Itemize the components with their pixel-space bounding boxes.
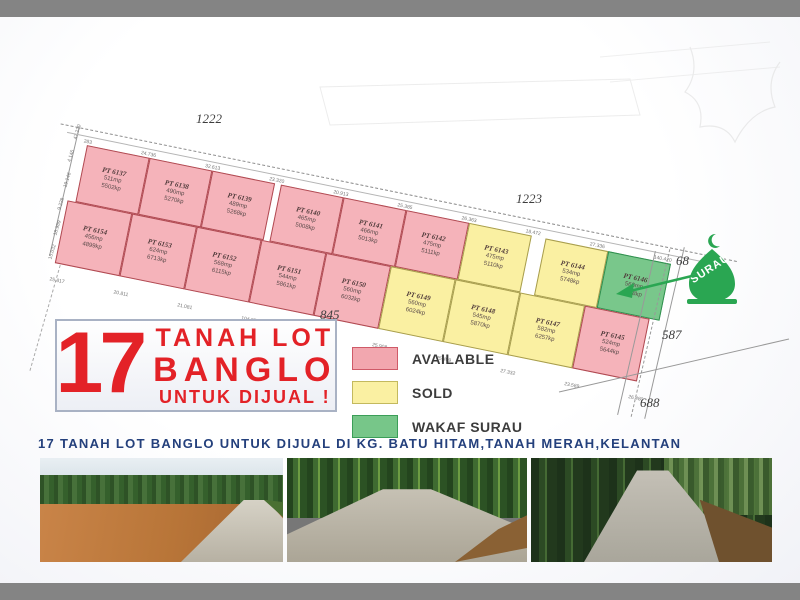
road-label-1222: 1222: [196, 111, 222, 127]
legend-swatch: [352, 381, 398, 404]
photo-cleared-land: [40, 458, 283, 562]
survey-mark: 21.081: [177, 302, 193, 311]
survey-mark: 9.228: [57, 197, 66, 211]
road-label-688: 688: [640, 395, 660, 411]
survey-mark: 25.817: [49, 276, 65, 285]
title-text: TANAH LOT BANGLO UNTUK DIJUAL !: [153, 324, 336, 408]
road-label-587: 587: [662, 327, 682, 343]
survey-mark: 19.146: [63, 172, 73, 188]
legend-swatch: [352, 347, 398, 370]
faint-boundary-sketch: [300, 27, 790, 207]
slide-background: 47.2304.14619.1469.22818.98915.032 28324…: [0, 17, 800, 583]
legend: AVAILABLESOLDWAKAF SURAU: [352, 347, 523, 449]
legend-row-wakaf-surau: WAKAF SURAU: [352, 415, 523, 438]
legend-label: WAKAF SURAU: [412, 419, 523, 435]
flyer-canvas: 47.2304.14619.1469.22818.98915.032 28324…: [0, 0, 800, 600]
road-label-1223: 1223: [516, 191, 542, 207]
location-caption: 17 TANAH LOT BANGLO UNTUK DIJUAL DI KG. …: [38, 436, 681, 451]
title-box: 17 TANAH LOT BANGLO UNTUK DIJUAL !: [55, 319, 337, 412]
title-line1: TANAH LOT: [156, 324, 335, 353]
letterbox-bottom: [0, 583, 800, 600]
photo-gravel-road: [287, 458, 527, 562]
legend-label: AVAILABLE: [412, 351, 495, 367]
legend-row-sold: SOLD: [352, 381, 523, 404]
title-line2: BANGLO: [153, 353, 336, 387]
surau-arrow: [608, 265, 700, 301]
title-number: 17: [56, 327, 144, 400]
title-line3: UNTUK DIJUAL !: [159, 387, 331, 408]
lot-pt-6145: PT 6145524mp5644kp: [572, 306, 649, 382]
letterbox-top: [0, 0, 800, 17]
legend-row-available: AVAILABLE: [352, 347, 523, 370]
legend-label: SOLD: [412, 385, 453, 401]
legend-swatch: [352, 415, 398, 438]
survey-mark: 20.811: [113, 289, 129, 298]
survey-mark: 4.146: [67, 149, 76, 163]
photo-forest-path: [531, 458, 772, 562]
